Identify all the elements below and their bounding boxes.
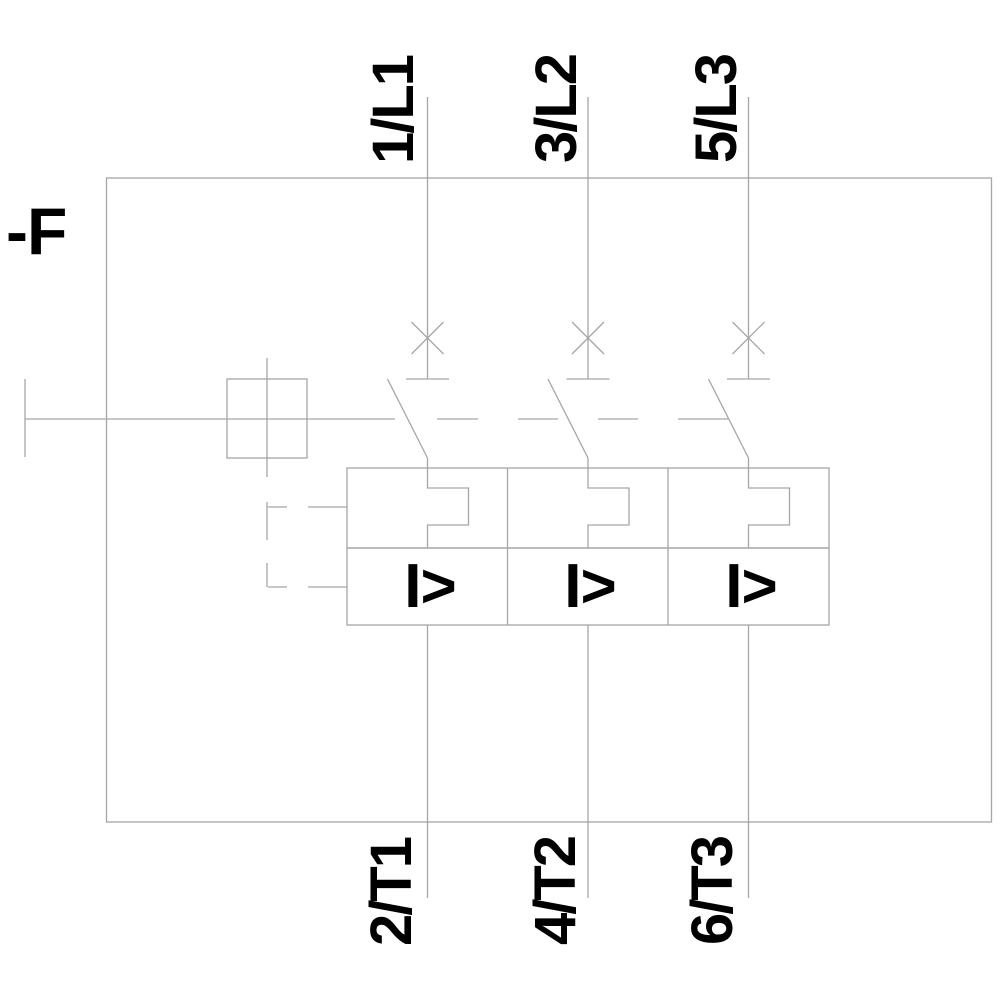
magnetic-trip-symbol-3: I> bbox=[725, 556, 776, 618]
pole-3 bbox=[709, 97, 790, 898]
terminal-label-1L1: 1/L1 bbox=[365, 56, 423, 164]
terminal-label-4T2: 4/T2 bbox=[527, 837, 585, 945]
terminal-label-3L2: 3/L2 bbox=[528, 55, 586, 163]
mechanical-link-dashed bbox=[267, 419, 728, 587]
pole-2-thermal-hook bbox=[588, 458, 629, 548]
actuator bbox=[25, 358, 395, 477]
terminal-label-2T1: 2/T1 bbox=[363, 838, 421, 946]
device-tag-label: -F bbox=[6, 198, 66, 264]
terminal-label-5L3: 5/L3 bbox=[688, 55, 746, 163]
device-frame bbox=[107, 178, 992, 822]
pole-3-thermal-hook bbox=[749, 458, 790, 548]
terminal-label-6T3: 6/T3 bbox=[684, 837, 742, 945]
schematic-linework bbox=[0, 0, 1000, 1000]
circuit-breaker-diagram: -F 1/L1 3/L2 5/L3 2/T1 4/T2 6/T3 I> I> I… bbox=[0, 0, 1000, 1000]
magnetic-trip-symbol-2: I> bbox=[564, 556, 615, 618]
pole-1 bbox=[388, 97, 469, 898]
pole-2 bbox=[548, 97, 629, 898]
magnetic-trip-symbol-1: I> bbox=[404, 556, 455, 618]
pole-1-thermal-hook bbox=[428, 458, 469, 548]
